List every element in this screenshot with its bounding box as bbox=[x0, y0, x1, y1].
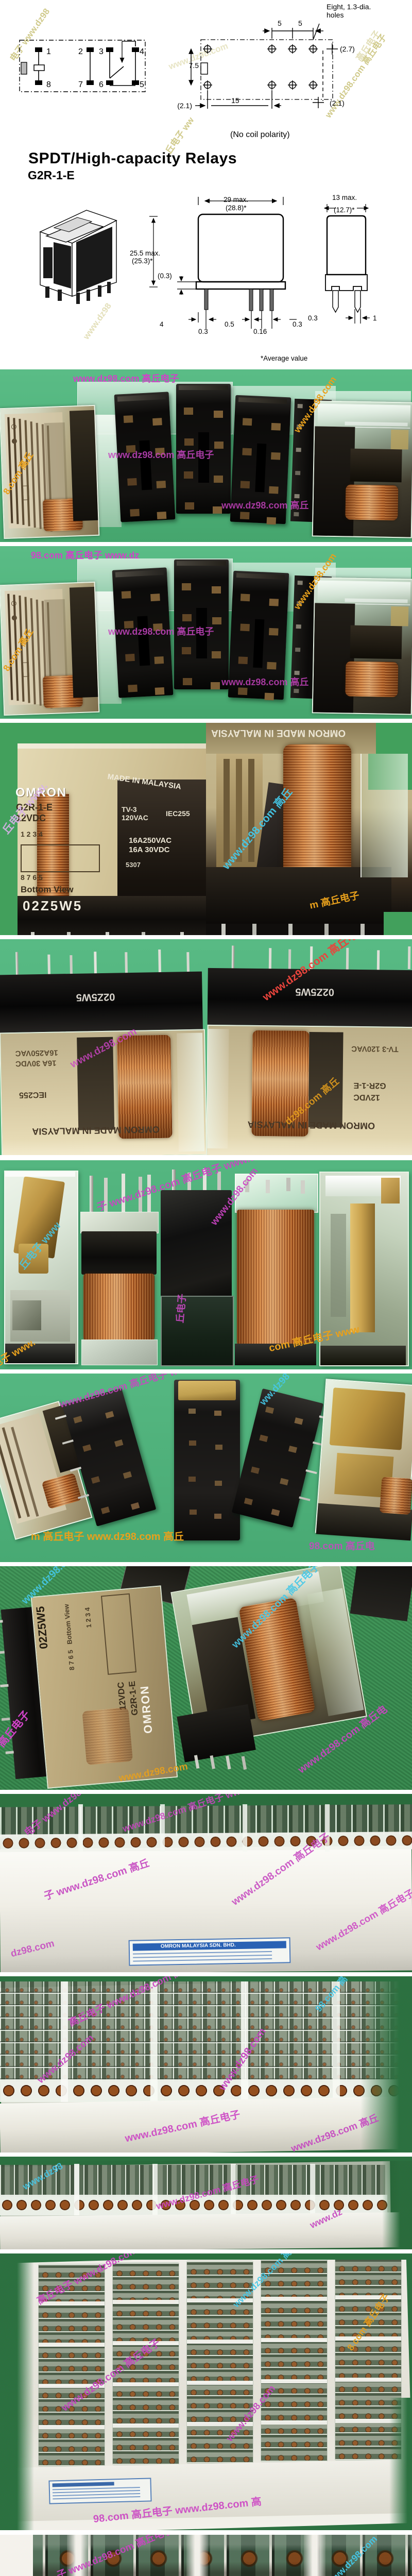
svg-text:Eight, 1.3-dia.: Eight, 1.3-dia. bbox=[327, 3, 371, 11]
svg-text:电子 www.dz98: 电子 www.dz98 bbox=[8, 6, 51, 63]
svg-text:0.3: 0.3 bbox=[198, 328, 208, 335]
svg-text:www.dz98: www.dz98 bbox=[81, 301, 113, 342]
svg-text:4: 4 bbox=[140, 47, 144, 56]
svg-text:holes: holes bbox=[327, 11, 344, 19]
svg-text:0.5: 0.5 bbox=[225, 320, 234, 328]
svg-text:15: 15 bbox=[231, 96, 239, 105]
svg-text:(2.1): (2.1) bbox=[330, 99, 345, 107]
svg-text:(12.7)*: (12.7)* bbox=[334, 206, 355, 214]
svg-text:8: 8 bbox=[46, 80, 51, 89]
svg-text:0.16: 0.16 bbox=[253, 328, 267, 335]
svg-text:25.5 max.: 25.5 max. bbox=[130, 249, 160, 257]
svg-text:(28.8)*: (28.8)* bbox=[226, 204, 247, 212]
svg-text:(2.1): (2.1) bbox=[177, 101, 192, 110]
svg-text:*Average value: *Average value bbox=[261, 354, 307, 362]
svg-text:6: 6 bbox=[99, 80, 104, 89]
svg-text:(25.3)*: (25.3)* bbox=[132, 257, 153, 265]
svg-text:7: 7 bbox=[78, 80, 83, 89]
svg-text:0.3: 0.3 bbox=[293, 320, 302, 328]
svg-text:7.5: 7.5 bbox=[189, 61, 199, 70]
svg-text:(0.3): (0.3) bbox=[158, 272, 172, 280]
svg-text:(2.7): (2.7) bbox=[340, 45, 355, 53]
svg-text:29 max.: 29 max. bbox=[224, 196, 248, 204]
svg-text:2: 2 bbox=[78, 47, 83, 56]
svg-text:G2R-1-E: G2R-1-E bbox=[28, 168, 75, 182]
svg-text:5: 5 bbox=[278, 19, 282, 27]
svg-text:0.3: 0.3 bbox=[308, 314, 318, 322]
svg-text:4: 4 bbox=[160, 320, 164, 328]
svg-text:13 max.: 13 max. bbox=[332, 194, 357, 201]
svg-text:(No coil polarity): (No coil polarity) bbox=[230, 130, 290, 139]
svg-text:1: 1 bbox=[373, 314, 377, 322]
svg-text:5: 5 bbox=[140, 80, 144, 89]
svg-text:5: 5 bbox=[298, 19, 302, 27]
svg-text:3: 3 bbox=[99, 47, 104, 56]
svg-text:SPDT/High-capacity Relays: SPDT/High-capacity Relays bbox=[28, 150, 237, 167]
svg-text:1: 1 bbox=[46, 47, 51, 56]
